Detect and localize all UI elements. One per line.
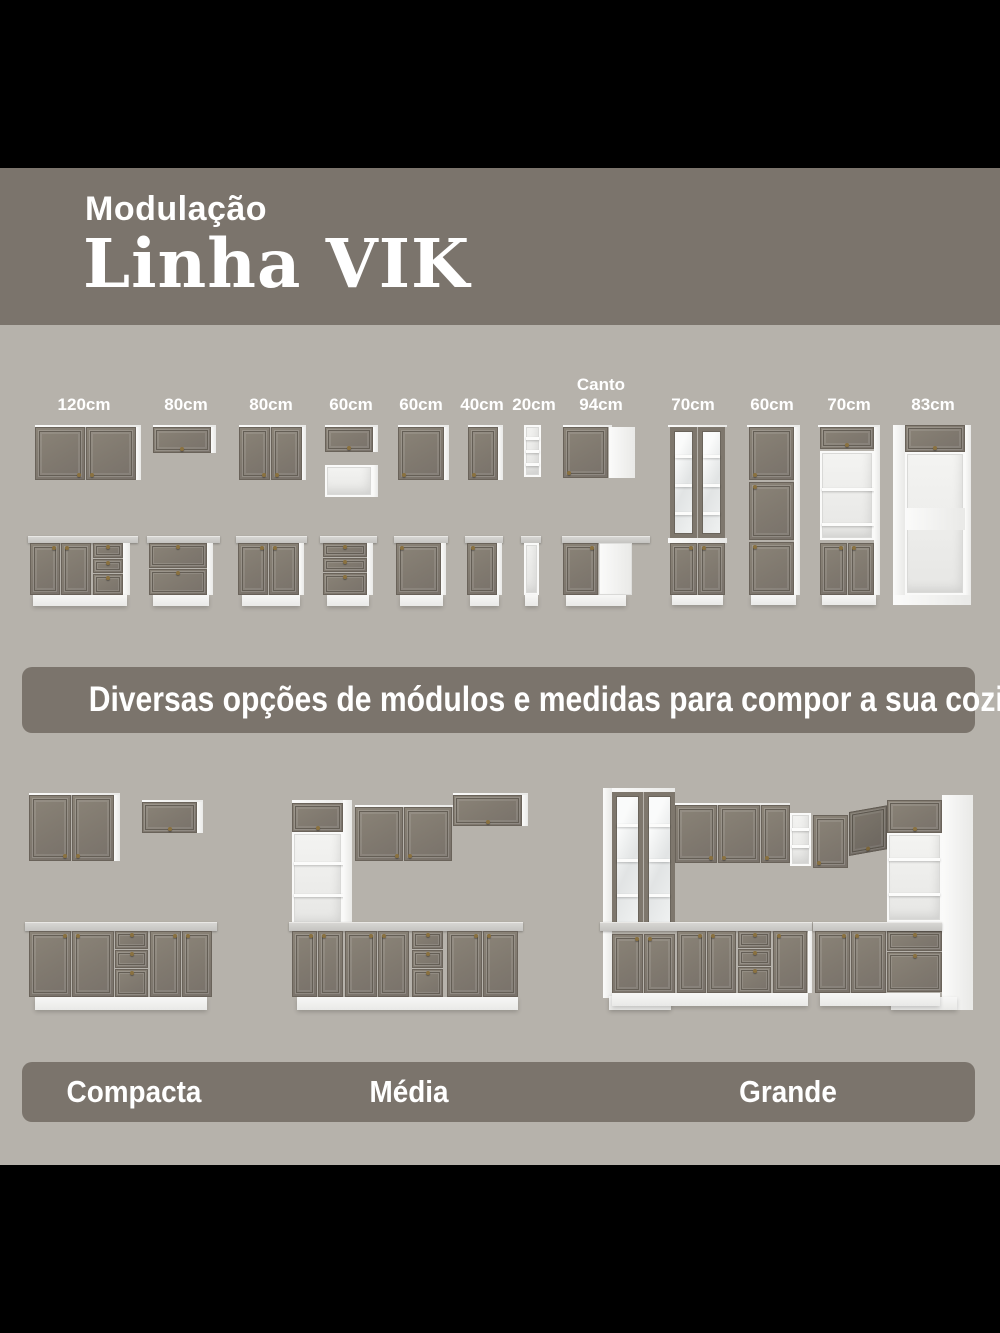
countertop: [465, 536, 503, 543]
cabinet-door: [182, 931, 212, 997]
open-shelf-box: [887, 833, 942, 922]
shelf: [703, 484, 720, 487]
cabinet-drawer: [115, 931, 148, 949]
cabinet-door: [269, 543, 299, 595]
side-panel: [609, 427, 635, 478]
module-tall-70cm-glass: [668, 425, 727, 605]
cabinet-door: [150, 931, 181, 997]
side-panel: [123, 543, 130, 595]
plinth: [35, 997, 207, 1010]
module-upper-60cm-flip-niche: [325, 425, 378, 497]
plinth: [566, 595, 626, 606]
cabinet-door: [468, 427, 498, 480]
cabinet-door: [820, 543, 847, 595]
cabinet-drawer: [887, 952, 942, 992]
page: { "header": { "kicker": "Modulação", "ti…: [0, 0, 1000, 1333]
cabinet-drawer: [323, 573, 367, 595]
shelf: [617, 894, 638, 897]
cabinet-drawer: [738, 949, 771, 966]
module-base-canto-94cm: [562, 536, 650, 607]
plinth: [242, 595, 300, 606]
cabinet-drawer: [887, 931, 942, 951]
cabinet-door: [453, 795, 522, 826]
module-upper-120cm: [35, 425, 141, 480]
letterbox-top: [0, 0, 1000, 168]
grande-uppers-right-angled: [849, 805, 887, 856]
grande-tall-right: [887, 795, 973, 1010]
cabinet-door: [563, 543, 598, 595]
shelf: [617, 859, 638, 862]
cabinet-drawer: [93, 574, 123, 595]
module-upper-40cm-door: [468, 425, 503, 480]
plinth: [153, 595, 209, 606]
countertop: [394, 536, 448, 543]
plinth: [751, 595, 796, 605]
cabinet-door: [238, 543, 268, 595]
side-panel: [808, 931, 812, 993]
module-base-120cm: [28, 536, 140, 607]
cabinet-door: [35, 427, 85, 480]
banner: Diversas opções de módulos e medidas par…: [22, 667, 975, 733]
shelf: [675, 512, 692, 515]
open-shelf-box: [820, 451, 874, 540]
side-panel: [497, 543, 502, 595]
plinth: [612, 993, 808, 1006]
cabinet-door: [887, 800, 942, 833]
cabinet-door: [820, 427, 874, 449]
countertop: [562, 536, 650, 543]
cabinet-door: [848, 543, 874, 595]
countertop: [28, 536, 138, 543]
module-size-label: 70cm: [804, 395, 894, 415]
countertop: [289, 922, 523, 931]
countertop: [813, 922, 942, 931]
plinth: [525, 595, 538, 606]
cabinet-door: [378, 931, 409, 997]
side-panel: [599, 543, 632, 595]
cabinet-door: [644, 934, 675, 994]
cabinet-door: [563, 427, 608, 478]
module-base-60cm-drawers: [320, 536, 377, 607]
shelf: [617, 824, 638, 827]
side-panel: [207, 543, 213, 595]
grande-base-left: [677, 931, 812, 993]
banner-text: Diversas opções de módulos e medidas par…: [89, 667, 909, 733]
module-upper-80cm-flip: [153, 425, 216, 453]
module-tall-83cm-open-frame: [893, 425, 971, 605]
side-panel: [373, 465, 378, 497]
side-panel: [373, 427, 378, 452]
glass-door: [612, 792, 643, 928]
open-niche: [325, 465, 373, 497]
side-panel: [603, 788, 612, 998]
cabinet-door: [467, 543, 497, 595]
cabinet-door: [153, 427, 211, 453]
cabinet-door: [355, 807, 403, 861]
module-upper-60cm-door: [398, 425, 449, 480]
cabinet-door: [292, 803, 343, 832]
countertop: [147, 536, 220, 543]
module-base-20cm-open: [521, 536, 541, 607]
shelf: [675, 455, 692, 458]
cabinet-door: [72, 795, 114, 861]
cabinet-door: [749, 542, 794, 595]
grande-corner-upper-door: [813, 815, 848, 868]
module-upper-80cm-doors: [239, 425, 306, 480]
cabinet-door: [72, 931, 114, 997]
size-label-compacta: Compacta: [67, 1062, 202, 1122]
module-tall-60cm-pantry: [747, 425, 800, 605]
shelf: [889, 858, 940, 861]
cabinet-door: [483, 931, 518, 997]
plinth: [327, 595, 369, 606]
cabinet-door: [612, 934, 643, 994]
side-panel: [794, 427, 800, 595]
countertop: [600, 922, 812, 931]
shelf: [822, 488, 874, 491]
side-panel: [942, 795, 973, 1010]
cabinet-door: [239, 427, 270, 480]
side-panel: [441, 543, 446, 595]
cabinet-door: [398, 427, 444, 480]
countertop: [320, 536, 377, 543]
grande-open-shelf: [790, 813, 811, 866]
shelf: [822, 523, 874, 526]
cabinet-door: [851, 931, 886, 993]
open-shelf-box: [292, 832, 343, 927]
module-tall-70cm-open: [818, 425, 880, 605]
shelf: [526, 450, 539, 453]
shelf: [649, 894, 670, 897]
glass-door: [670, 427, 697, 538]
shelf: [294, 862, 350, 865]
module-base-40cm-door: [465, 536, 503, 607]
cabinet-drawer: [323, 558, 367, 572]
shelf: [649, 824, 670, 827]
shelf: [792, 845, 809, 848]
module-size-label: 80cm: [226, 395, 316, 415]
cabinet-door: [773, 931, 807, 993]
size-label-grande: Grande: [739, 1062, 837, 1122]
cabinet-drawer: [412, 969, 443, 997]
module-upper-canto-94cm: [563, 425, 635, 478]
cabinet-drawer: [149, 569, 207, 595]
cabinet-drawer: [412, 931, 443, 949]
side-panel: [136, 427, 141, 480]
shelf: [294, 894, 350, 897]
cabinet-door: [404, 807, 452, 861]
side-panel: [893, 595, 971, 605]
shelf: [526, 437, 539, 440]
shelf: [792, 828, 809, 831]
cabinet-door: [698, 543, 725, 595]
countertop: [25, 922, 217, 931]
cabinet-door: [142, 802, 197, 833]
cabinet-door: [271, 427, 302, 480]
cabinet-door: [749, 482, 794, 540]
module-size-label: 120cm: [39, 395, 129, 415]
plinth: [33, 595, 127, 606]
shelf: [703, 512, 720, 515]
cabinet-door: [670, 543, 697, 595]
shelf: [889, 893, 940, 896]
module-size-label: 80cm: [141, 395, 231, 415]
side-panel: [905, 508, 965, 530]
cabinet-door: [815, 931, 850, 993]
module-size-label-line: Canto: [577, 375, 625, 394]
module-upper-20cm-open: [524, 425, 541, 477]
cabinet-drawer: [149, 543, 207, 568]
cabinet-door: [396, 543, 441, 595]
cabinet-door: [718, 805, 760, 863]
cabinet-door: [29, 795, 71, 861]
shelf: [703, 455, 720, 458]
plinth: [820, 993, 940, 1006]
shelf: [649, 859, 670, 862]
grande-uppers-left: [675, 803, 790, 865]
cabinet-door: [749, 427, 794, 480]
cabinet-drawer: [93, 543, 123, 558]
cabinet-door: [292, 931, 317, 997]
grande-tall-glass: [603, 788, 675, 1010]
plinth: [672, 595, 723, 605]
cabinet-drawer: [412, 950, 443, 968]
side-panel: [965, 425, 971, 605]
cabinet-door: [675, 805, 717, 863]
side-panel: [893, 425, 905, 605]
shelf: [675, 484, 692, 487]
side-panel: [522, 795, 528, 826]
open-shelf-box: [524, 543, 539, 595]
cabinet-door: [325, 427, 373, 452]
letterbox-bottom: [0, 1165, 1000, 1333]
glass-door: [698, 427, 725, 538]
grande-base-right: [815, 931, 887, 993]
cabinet-door: [29, 931, 71, 997]
cabinet-door: [677, 931, 706, 993]
side-panel: [211, 427, 216, 453]
side-panel: [302, 427, 306, 480]
module-size-label-canto: Canto 94cm: [556, 375, 646, 415]
glass-door: [644, 792, 675, 928]
plinth: [470, 595, 499, 606]
side-panel: [444, 427, 449, 480]
module-size-label-line: 94cm: [579, 395, 622, 414]
module-base-80cm-drawers: [147, 536, 220, 607]
cabinet-door: [707, 931, 736, 993]
cabinet-door: [345, 931, 377, 997]
side-panel: [197, 802, 203, 833]
cabinet-door: [86, 427, 136, 480]
side-panel: [299, 543, 304, 595]
module-size-label: 70cm: [648, 395, 738, 415]
cabinet-door: [30, 543, 60, 595]
cabinet-drawer: [115, 950, 148, 968]
cabinet-drawer: [738, 931, 771, 948]
cabinet-drawer: [115, 969, 148, 997]
countertop: [521, 536, 541, 543]
module-base-60cm-door: [394, 536, 448, 607]
side-panel: [367, 543, 373, 595]
plinth: [822, 595, 876, 605]
shelf: [526, 463, 539, 466]
module-size-label: 83cm: [888, 395, 978, 415]
kitchen-size-bar: Compacta Média Grande: [22, 1062, 975, 1122]
cabinet-door: [61, 543, 91, 595]
cabinet-door: [761, 805, 790, 863]
cabinet-drawer: [93, 559, 123, 573]
size-label-media: Média: [369, 1062, 448, 1122]
header-title: Linha VIK: [83, 224, 470, 303]
cabinet-drawer: [323, 543, 367, 557]
side-panel: [874, 427, 880, 595]
module-base-80cm-doors: [236, 536, 307, 607]
plinth: [297, 997, 518, 1010]
cabinet-door: [905, 425, 965, 452]
cabinet-door: [318, 931, 343, 997]
side-panel: [343, 800, 352, 927]
cabinet-door: [447, 931, 482, 997]
plinth: [400, 595, 443, 606]
countertop: [236, 536, 307, 543]
side-panel: [114, 795, 120, 861]
cabinet-drawer: [738, 967, 771, 993]
side-panel: [498, 427, 503, 480]
